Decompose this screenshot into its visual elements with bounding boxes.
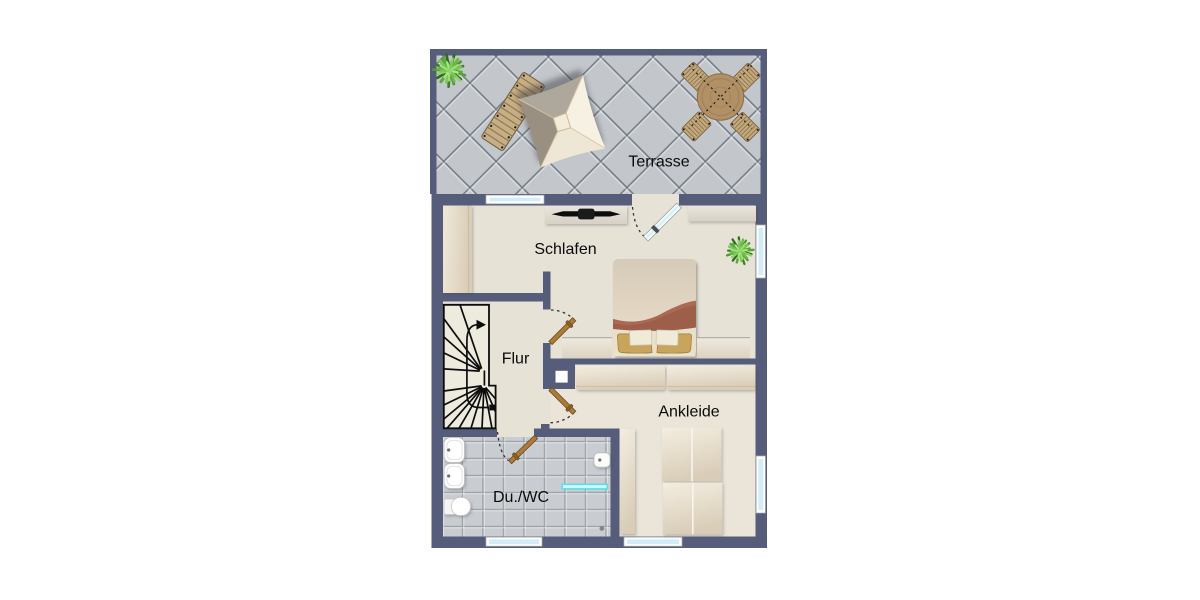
svg-text:Terrasse: Terrasse	[628, 154, 689, 171]
svg-text:Schlafen: Schlafen	[534, 241, 596, 258]
svg-text:Ankleide: Ankleide	[658, 403, 719, 420]
svg-text:Flur: Flur	[502, 351, 530, 368]
svg-text:Du./WC: Du./WC	[493, 489, 549, 506]
